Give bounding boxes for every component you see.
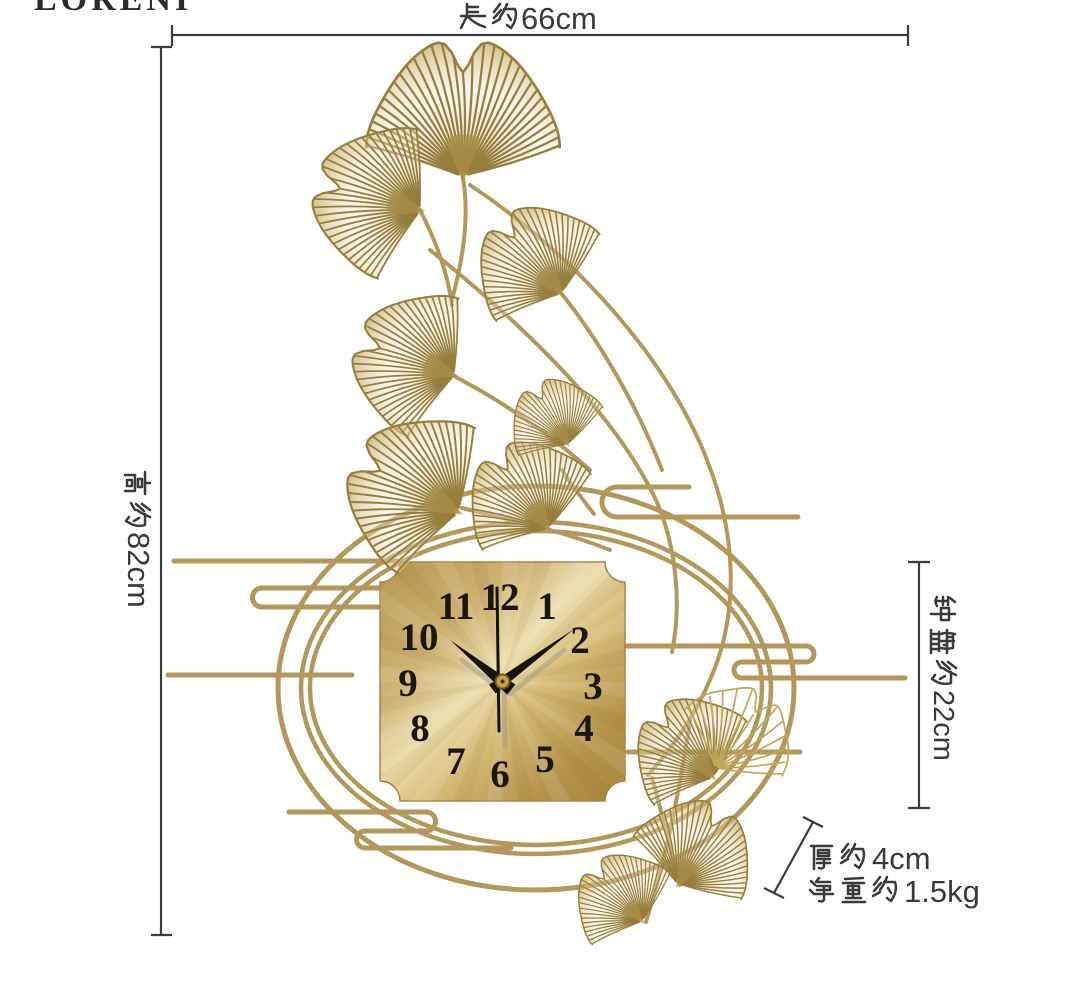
svg-text:9: 9: [398, 662, 418, 705]
svg-text:6: 6: [490, 753, 510, 796]
svg-text:2: 2: [570, 619, 590, 662]
svg-text:82cm: 82cm: [121, 532, 156, 608]
svg-text:1.5kg: 1.5kg: [904, 874, 980, 909]
svg-text:10: 10: [400, 616, 439, 659]
svg-text:3: 3: [583, 665, 603, 708]
svg-text:7: 7: [446, 740, 466, 783]
svg-text:1: 1: [537, 585, 557, 628]
svg-text:LORENI: LORENI: [34, 0, 192, 18]
svg-text:11: 11: [438, 585, 475, 628]
svg-text:8: 8: [410, 707, 430, 750]
svg-text:22cm: 22cm: [927, 690, 959, 761]
svg-text:4: 4: [574, 707, 594, 750]
svg-text:66cm: 66cm: [521, 1, 597, 36]
svg-text:12: 12: [481, 576, 520, 619]
svg-text:4cm: 4cm: [872, 841, 931, 876]
svg-text:5: 5: [535, 738, 555, 781]
